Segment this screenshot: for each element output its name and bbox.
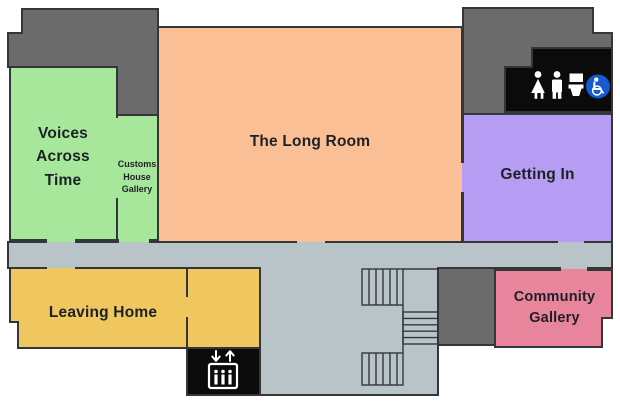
door-gap: [119, 242, 149, 246]
floor-plan-canvas: [0, 0, 620, 403]
door-gap: [561, 269, 587, 273]
door-gap: [561, 264, 587, 269]
door-gap: [462, 163, 469, 192]
lift-passengers-icon: [214, 370, 232, 385]
door-gap: [113, 118, 122, 198]
door-gap: [558, 235, 584, 242]
door-gap: [47, 242, 75, 246]
wheelchair-accessible-icon: [594, 77, 598, 81]
door-gap: [297, 235, 325, 242]
room-leaving-home: [10, 268, 260, 348]
room-customs-house-gallery: [117, 115, 158, 240]
door-gap: [47, 234, 75, 242]
door-gap: [558, 242, 584, 246]
room-the-long-room: [158, 27, 462, 242]
room-voices-across-time: [10, 67, 117, 240]
service-area-block: [438, 268, 495, 345]
room-community-gallery: [495, 270, 612, 347]
door-gap: [47, 268, 75, 273]
room-getting-in: [463, 114, 612, 242]
door-gap: [119, 234, 149, 242]
museum-floor-plan: Voices Across Time Customs House Gallery…: [0, 0, 620, 403]
door-gap: [297, 242, 325, 246]
door-gap: [456, 163, 462, 192]
walls-layer: [8, 8, 612, 395]
